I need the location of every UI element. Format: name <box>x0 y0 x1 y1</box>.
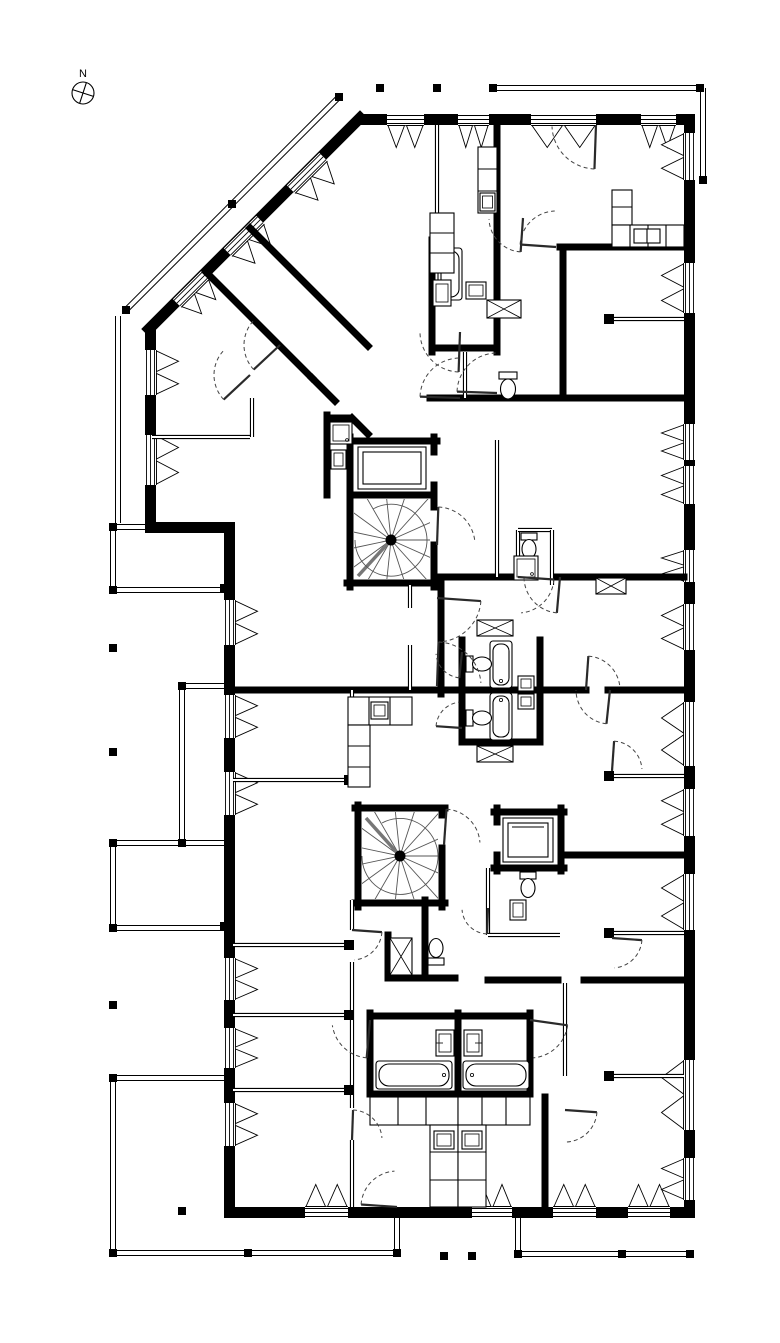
toilet-icon <box>428 939 444 966</box>
floor-plan-canvas: N <box>0 0 780 1343</box>
window-vent-icon <box>576 1185 596 1207</box>
bathtub-icon <box>463 1061 529 1089</box>
window-vent-icon <box>662 790 684 812</box>
window-vent-icon <box>236 1049 258 1067</box>
door-leaf <box>606 690 610 724</box>
door-arc <box>439 601 481 642</box>
door-swing-icon <box>518 577 554 613</box>
column-icon <box>468 1252 476 1260</box>
railing-post-icon <box>109 1249 117 1257</box>
toilet-icon <box>521 533 537 559</box>
window-vent-icon <box>236 718 258 738</box>
bathtub-icon <box>490 693 512 740</box>
toilet-icon <box>466 656 492 672</box>
wardrobe-icon <box>477 620 513 636</box>
window-vent-icon <box>407 126 424 148</box>
door-arc <box>420 333 459 372</box>
door-swing-icon <box>520 211 556 247</box>
window-vent-icon <box>662 467 684 484</box>
window-icon <box>145 435 179 485</box>
elevator-icon <box>358 447 426 489</box>
north-arrow-icon: N <box>69 68 97 107</box>
door-swing-icon <box>352 930 382 960</box>
door-arc <box>533 1025 567 1058</box>
window-icon <box>662 466 696 504</box>
column-icon <box>376 84 384 92</box>
door-swing-icon <box>524 577 560 613</box>
stair-tread <box>400 856 464 884</box>
window-icon <box>224 1028 258 1068</box>
railing-post-icon <box>244 1249 252 1257</box>
window-icon <box>305 1185 348 1219</box>
interior-wall <box>312 378 335 401</box>
door-arc <box>214 351 224 400</box>
floor-plan-drawing: N <box>0 0 780 1343</box>
column-icon <box>109 1001 117 1009</box>
window-icon <box>531 114 596 148</box>
door-leaf <box>557 577 560 613</box>
door-arc <box>576 690 606 724</box>
sink-icon <box>436 1030 454 1056</box>
door-leaf <box>586 656 588 690</box>
door-arc <box>614 741 642 769</box>
door-arc <box>436 702 459 726</box>
window-vent-icon <box>388 126 405 148</box>
window-vent-icon <box>642 126 658 148</box>
column-icon <box>433 84 441 92</box>
window-vent-icon <box>554 1185 574 1207</box>
door-arc <box>420 358 459 397</box>
window-vent-icon <box>662 628 684 649</box>
window-vent-icon <box>662 486 684 503</box>
door-arc <box>462 910 487 934</box>
window-vent-icon <box>236 624 258 645</box>
door-leaf <box>352 1110 353 1140</box>
kitchen-counter-icon <box>370 1097 530 1207</box>
railing-post-icon <box>699 176 707 184</box>
window-vent-icon <box>629 1185 648 1207</box>
door-leaf <box>487 908 488 934</box>
door-arc <box>457 353 496 392</box>
window-icon <box>287 153 343 209</box>
door-leaf <box>352 930 382 932</box>
elevator-icon <box>503 818 553 862</box>
window-vent-icon <box>236 959 258 978</box>
railing-post-icon <box>109 586 117 594</box>
window-icon <box>662 263 696 313</box>
wall-pier <box>344 940 354 950</box>
window-icon <box>224 216 280 272</box>
window-icon <box>224 1103 258 1146</box>
sink-icon <box>518 694 534 709</box>
fixtures-layer <box>330 147 684 1207</box>
sink-icon <box>331 450 346 469</box>
door-leaf <box>530 1020 568 1025</box>
railing-post-icon <box>514 1250 522 1258</box>
door-arc <box>588 656 620 688</box>
stair-tread <box>391 512 455 540</box>
door-arc <box>332 1025 366 1058</box>
wardrobe-icon <box>477 746 513 762</box>
wall-pier <box>604 928 614 938</box>
column-icon <box>109 644 117 652</box>
door-swing-icon <box>214 351 250 400</box>
window-vent-icon <box>236 1029 258 1047</box>
door-swing-icon <box>420 358 460 398</box>
wall-pier <box>344 1010 354 1020</box>
window-vent-icon <box>236 696 258 716</box>
door-arc <box>355 932 382 960</box>
window-vent-icon <box>662 903 684 929</box>
north-label: N <box>79 68 87 80</box>
door-swing-icon <box>420 332 460 372</box>
stair-tread <box>391 540 455 568</box>
door-arc <box>520 211 555 244</box>
railing-post-icon <box>220 922 228 930</box>
door-swing-icon <box>576 690 610 724</box>
wardrobe-icon <box>390 938 412 975</box>
sink-icon <box>518 676 534 691</box>
window-vent-icon <box>662 443 684 459</box>
railing-post-icon <box>109 523 117 531</box>
door-arc <box>521 580 554 613</box>
interior-wall <box>206 272 312 378</box>
door-leaf <box>361 1204 397 1207</box>
toilet-icon <box>520 872 536 898</box>
door-swing-icon <box>612 938 642 968</box>
window-icon <box>662 874 696 930</box>
window-vent-icon <box>157 351 179 372</box>
interior-wall <box>250 228 368 346</box>
doors-layer <box>214 125 642 1207</box>
door-leaf <box>437 642 439 686</box>
toilet-icon <box>466 710 492 726</box>
railing-post-icon <box>618 1250 626 1258</box>
window-vent-icon <box>662 875 684 901</box>
railing-post-icon <box>489 84 497 92</box>
wall-pier <box>604 1071 614 1081</box>
door-arc <box>361 1171 394 1204</box>
kitchen-counter-icon <box>478 147 497 213</box>
window-icon <box>662 604 696 650</box>
door-leaf <box>521 218 523 252</box>
window-vent-icon <box>236 601 258 622</box>
railing-post-icon <box>109 1074 117 1082</box>
window-vent-icon <box>662 425 684 441</box>
window-vent-icon <box>236 980 258 999</box>
window-vent-icon <box>328 1185 348 1207</box>
toilet-icon <box>499 372 517 399</box>
window-icon <box>224 600 258 645</box>
door-swing-icon <box>586 656 620 690</box>
window-vent-icon <box>306 1185 326 1207</box>
window-vent-icon <box>662 551 684 565</box>
stair-tread <box>391 473 413 540</box>
door-leaf <box>224 375 250 400</box>
shower-icon <box>330 422 352 444</box>
door-arc <box>244 321 254 370</box>
window-icon <box>145 350 179 395</box>
door-arc <box>438 507 475 542</box>
door-leaf <box>612 938 642 940</box>
door-swing-icon <box>436 702 462 728</box>
door-swing-icon <box>462 908 488 934</box>
window-vent-icon <box>236 795 258 815</box>
wall-pier <box>604 771 614 781</box>
door-swing-icon <box>530 1020 568 1058</box>
shower-icon <box>514 556 538 580</box>
railing-post-icon <box>122 306 130 314</box>
column-icon <box>109 748 117 756</box>
window-vent-icon <box>459 126 473 148</box>
window-icon <box>662 789 696 836</box>
window-vent-icon <box>662 605 684 626</box>
window-vent-icon <box>157 461 179 484</box>
door-leaf <box>437 507 438 545</box>
window-icon <box>224 958 258 1000</box>
window-vent-icon <box>157 436 179 459</box>
window-vent-icon <box>662 1159 684 1178</box>
window-vent-icon <box>662 735 684 765</box>
sink-icon <box>510 900 526 920</box>
door-arc <box>566 1112 597 1142</box>
door-arc <box>447 809 480 842</box>
railing-post-icon <box>228 200 236 208</box>
door-swing-icon <box>437 507 475 545</box>
kitchen-counter-icon <box>430 213 454 306</box>
railing-post-icon <box>178 839 186 847</box>
door-leaf <box>594 125 596 169</box>
door-leaf <box>436 726 462 728</box>
wall-pier <box>344 1085 354 1095</box>
door-swing-icon <box>444 809 480 845</box>
stair-tread <box>400 856 422 923</box>
window-vent-icon <box>157 374 179 395</box>
door-leaf <box>254 345 280 370</box>
door-leaf <box>459 332 460 372</box>
stair-tread <box>365 795 400 856</box>
window-icon <box>387 114 424 148</box>
window-icon <box>662 702 696 766</box>
window-vent-icon <box>236 773 258 793</box>
stair-tread <box>400 828 464 856</box>
column-icon <box>178 1207 186 1215</box>
stair-tread <box>365 856 400 917</box>
window-vent-icon <box>662 703 684 733</box>
sink-icon <box>464 1030 482 1056</box>
wall-pier <box>604 314 614 324</box>
window-icon <box>662 1158 696 1200</box>
window-vent-icon <box>493 1185 511 1207</box>
window-vent-icon <box>236 1126 258 1146</box>
window-icon <box>553 1185 596 1219</box>
railing-post-icon <box>178 682 186 690</box>
door-arc <box>615 940 642 968</box>
wardrobe-icon <box>596 578 626 594</box>
window-vent-icon <box>532 126 563 148</box>
railing-post-icon <box>109 924 117 932</box>
kitchen-counter-icon <box>612 190 684 247</box>
bathtub-icon <box>490 641 512 688</box>
interior-wall <box>352 418 368 434</box>
door-leaf <box>457 392 497 393</box>
window-vent-icon <box>662 158 684 180</box>
window-vent-icon <box>662 264 684 287</box>
railing-post-icon <box>109 839 117 847</box>
door-leaf <box>612 741 614 771</box>
window-vent-icon <box>662 1096 684 1129</box>
railing-post-icon <box>393 1249 401 1257</box>
door-swing-icon <box>612 741 642 771</box>
wardrobe-icon <box>487 300 521 318</box>
bathtub-icon <box>376 1061 452 1089</box>
door-leaf <box>520 244 556 247</box>
railing-post-icon <box>335 93 343 101</box>
door-swing-icon <box>361 1171 397 1207</box>
column-icon <box>440 1252 448 1260</box>
sink-icon <box>466 282 486 299</box>
kitchen-counter-icon <box>348 697 412 787</box>
window-vent-icon <box>475 126 489 148</box>
window-icon <box>662 424 696 460</box>
door-leaf <box>565 1110 597 1112</box>
railing-post-icon <box>696 84 704 92</box>
railing-post-icon <box>220 584 228 592</box>
window-vent-icon <box>662 289 684 312</box>
window-icon <box>662 1060 696 1130</box>
railing-post-icon <box>686 1250 694 1258</box>
window-icon <box>224 695 258 738</box>
window-icon <box>458 114 489 148</box>
window-vent-icon <box>662 814 684 836</box>
window-vent-icon <box>565 126 596 148</box>
railing-post-icon <box>393 1209 401 1217</box>
door-leaf <box>420 397 460 398</box>
window-vent-icon <box>236 1104 258 1124</box>
door-swing-icon <box>565 1110 597 1142</box>
